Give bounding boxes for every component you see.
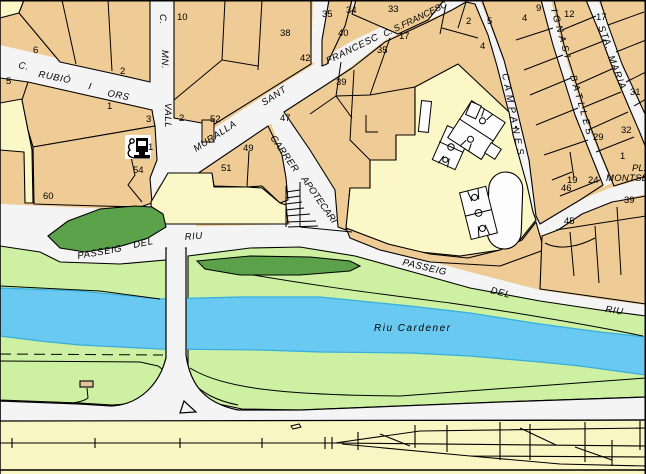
svg-text:32: 32 <box>621 125 632 136</box>
svg-text:38: 38 <box>280 28 291 39</box>
svg-text:3: 3 <box>146 114 151 125</box>
svg-text:5: 5 <box>6 76 11 87</box>
svg-text:4: 4 <box>480 41 485 52</box>
svg-text:33: 33 <box>388 4 399 15</box>
svg-text:51: 51 <box>221 163 232 174</box>
svg-text:VALL: VALL <box>162 103 173 128</box>
svg-text:17: 17 <box>596 12 607 23</box>
svg-text:1: 1 <box>107 101 112 112</box>
svg-text:42: 42 <box>300 53 311 64</box>
svg-text:35: 35 <box>322 9 333 20</box>
svg-text:2: 2 <box>466 16 471 27</box>
svg-text:1: 1 <box>620 151 625 162</box>
svg-text:35: 35 <box>377 45 388 56</box>
svg-text:2: 2 <box>179 113 184 124</box>
svg-text:C.: C. <box>157 14 168 25</box>
svg-text:Riu Cardener: Riu Cardener <box>374 323 451 334</box>
svg-text:1: 1 <box>148 142 153 153</box>
svg-text:49: 49 <box>243 143 254 154</box>
svg-text:29: 29 <box>593 132 604 143</box>
svg-text:MONTSERRAT: MONTSERRAT <box>606 173 646 184</box>
svg-text:60: 60 <box>43 191 54 202</box>
svg-text:46: 46 <box>561 183 572 194</box>
svg-text:45: 45 <box>564 216 575 227</box>
svg-text:MN.: MN. <box>159 50 170 69</box>
svg-text:6: 6 <box>33 45 38 56</box>
svg-text:54: 54 <box>133 165 144 176</box>
svg-text:52: 52 <box>210 114 221 125</box>
svg-text:40: 40 <box>338 28 349 39</box>
svg-text:31: 31 <box>630 87 641 98</box>
svg-text:47: 47 <box>280 113 291 124</box>
svg-text:34: 34 <box>346 5 357 16</box>
svg-text:39: 39 <box>624 195 635 206</box>
svg-text:39: 39 <box>336 77 347 88</box>
svg-text:RIU: RIU <box>184 230 203 243</box>
svg-text:4: 4 <box>522 13 527 24</box>
svg-text:9: 9 <box>536 3 541 14</box>
svg-text:5: 5 <box>487 16 492 27</box>
svg-text:24: 24 <box>588 175 599 186</box>
svg-text:17: 17 <box>399 31 410 42</box>
svg-text:2: 2 <box>120 66 125 77</box>
svg-text:10: 10 <box>177 12 188 23</box>
svg-text:12: 12 <box>564 9 575 20</box>
svg-text:C.: C. <box>17 60 30 73</box>
